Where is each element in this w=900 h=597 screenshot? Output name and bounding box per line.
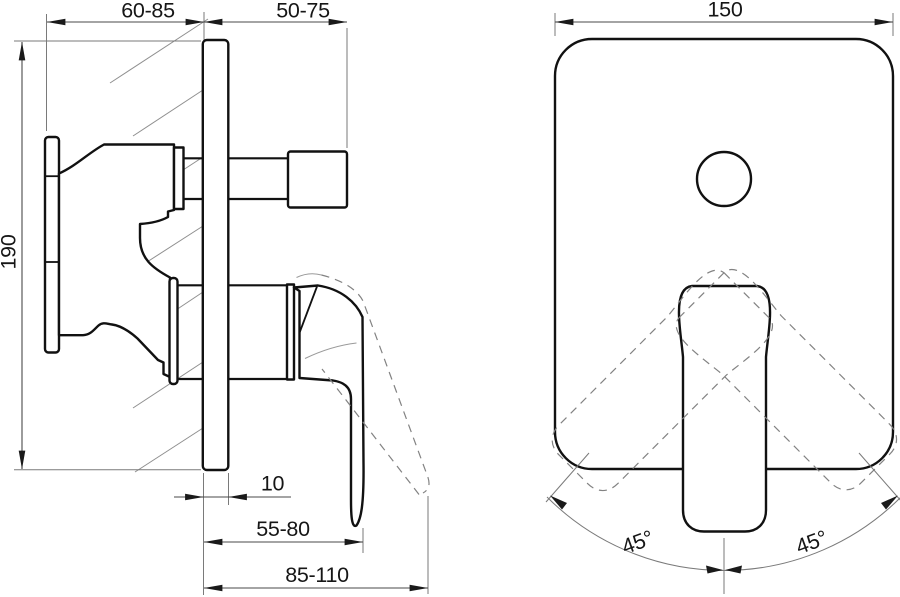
mounting-rail bbox=[45, 137, 59, 353]
cartridge-backplate bbox=[170, 278, 178, 384]
dim-depth-in-front-label: 50-75 bbox=[276, 0, 330, 23]
diverter-knob-side bbox=[288, 152, 347, 208]
side-view: 60-85 50-75 190 10 55-80 85-110 bbox=[0, 0, 429, 595]
upper-valve-stem bbox=[184, 158, 290, 199]
diverter-button bbox=[697, 152, 751, 206]
dim-depth-behind-wall-label: 60-85 bbox=[121, 0, 175, 23]
dim-handle-reach-max-label: 85-110 bbox=[285, 563, 349, 587]
lower-cartridge-stem bbox=[178, 285, 288, 379]
swing-angle-left-label: 45° bbox=[619, 526, 657, 559]
front-dimension-width: 150 bbox=[555, 0, 893, 36]
wall-plate-side bbox=[203, 40, 229, 470]
dim-handle-reach-min-label: 55-80 bbox=[256, 517, 310, 541]
technical-drawing-canvas: 60-85 50-75 190 10 55-80 85-110 150 bbox=[0, 0, 900, 597]
mixer-installation-drawing: 60-85 50-75 190 10 55-80 85-110 150 bbox=[0, 0, 900, 597]
mixer-body bbox=[59, 145, 174, 378]
swing-angle-right-label: 45° bbox=[793, 526, 831, 559]
dim-plate-width-label: 150 bbox=[708, 0, 743, 22]
handle-hub-side bbox=[287, 285, 294, 380]
dim-plate-thickness-label: 10 bbox=[261, 472, 285, 496]
front-view: 150 45° 45° bbox=[541, 0, 900, 594]
dim-body-height-label: 190 bbox=[0, 234, 21, 269]
upper-valve-collar bbox=[174, 148, 184, 210]
